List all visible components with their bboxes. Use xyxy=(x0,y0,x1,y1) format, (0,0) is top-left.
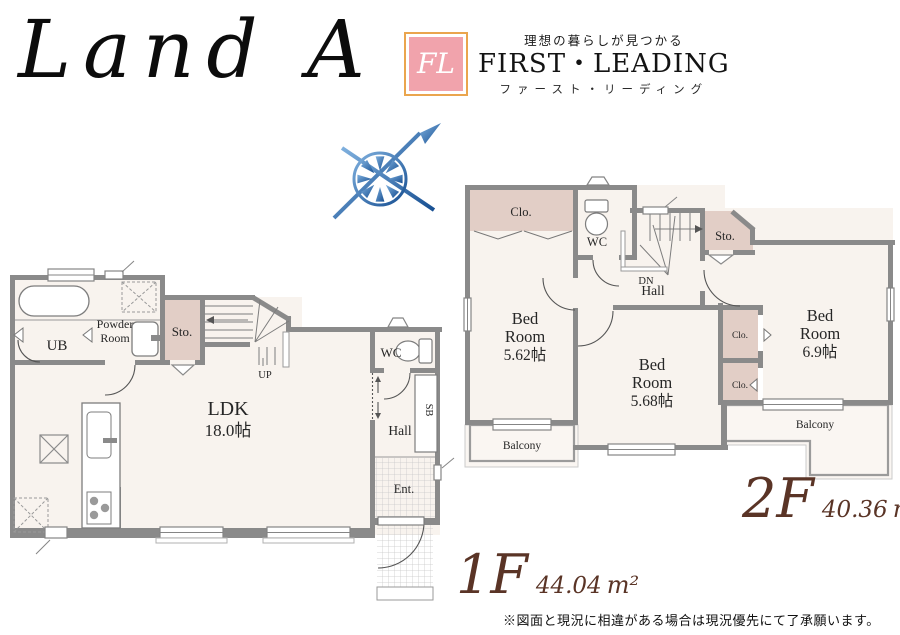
room-label-wc-1f: WC xyxy=(381,345,402,360)
company-logo: FL 理想の暮らしが見つかる FIRST・LEADING ファースト・リーディン… xyxy=(404,30,730,97)
room-label-ub: UB xyxy=(47,338,68,354)
compass-flag xyxy=(420,123,441,144)
room-label-wc-2f: WC xyxy=(587,235,607,249)
logo-monogram-box: FL xyxy=(404,32,468,96)
room-label-ldk: LDK xyxy=(207,398,249,420)
front-door-leaf xyxy=(378,517,424,525)
porch-step xyxy=(377,587,433,600)
room-label-clo-top: Clo. xyxy=(510,205,531,219)
room-label-ent: Ent. xyxy=(394,482,414,496)
logo-brand-name: FIRST・LEADING xyxy=(478,49,730,80)
bedroom3-label-1: Bed xyxy=(807,306,834,325)
logo-tagline: 理想の暮らしが見つかる xyxy=(524,30,684,49)
bedroom1-label-2: Room xyxy=(505,327,546,346)
room-label-sto-2f: Sto. xyxy=(715,229,735,243)
room-label-clo-a: Clo. xyxy=(732,331,748,341)
floorplan-1f: UB Powder Room Sto. UP LDK 18.0帖 WC Hall… xyxy=(10,257,465,602)
floor1-name: 1F xyxy=(456,548,528,602)
logo-text-block: 理想の暮らしが見つかる FIRST・LEADING ファースト・リーディング xyxy=(478,30,730,97)
disclaimer-note: ※図面と現況に相違がある場合は現況優先にて了承願います。 xyxy=(503,610,880,629)
bedroom1-size: 5.62帖 xyxy=(504,346,547,364)
bedroom3-size: 6.9帖 xyxy=(803,343,838,361)
bedroom2-size: 5.68帖 xyxy=(631,392,674,410)
balcony-left-label: Balcony xyxy=(503,440,542,452)
compass-icon xyxy=(328,116,450,224)
floor2-area-value: 40.36 xyxy=(822,497,888,523)
floorplan-2f: Clo. WC DN Sto. Hall Bed Room 5.62帖 Bed … xyxy=(463,174,895,510)
stairs-up-label: UP xyxy=(258,370,272,381)
logo-monogram: FL xyxy=(409,37,463,91)
room-label-powder-1: Powder xyxy=(97,317,134,331)
bedroom3-label-2: Room xyxy=(800,324,841,343)
page-title: Land A xyxy=(18,4,377,96)
vanity-sink-icon xyxy=(132,322,160,356)
floor1-area-value: 44.04 xyxy=(536,573,602,599)
floor2-name: 2F xyxy=(742,472,814,526)
room-label-clo-b: Clo. xyxy=(732,381,748,391)
bedroom2-label-2: Room xyxy=(632,373,673,392)
floor1-area-label: 1F 44.04 m² xyxy=(456,548,639,602)
balcony-right-label: Balcony xyxy=(796,419,835,431)
floor1-area-unit: m² xyxy=(607,571,639,599)
porch-tile xyxy=(377,523,433,587)
compass-star xyxy=(357,156,402,201)
toilet-icon-2f xyxy=(585,200,608,235)
compass-cross-lines xyxy=(334,133,434,218)
room-label-ldk-size: 18.0帖 xyxy=(205,421,252,440)
room-label-powder-2: Room xyxy=(100,331,130,345)
room-label-sb: SB xyxy=(423,404,434,417)
room-label-sto-1f: Sto. xyxy=(172,324,193,339)
room-label-hall-2f: Hall xyxy=(641,283,664,298)
flyer-canvas: Land A FL 理想の暮らしが見つかる FIRST・LEADING ファース… xyxy=(0,0,900,635)
floor2-area-label: 2F 40.36 m² xyxy=(742,472,900,526)
bedroom1-label-1: Bed xyxy=(512,309,539,328)
room-label-hall-1f: Hall xyxy=(388,423,411,438)
logo-brand-kana: ファースト・リーディング xyxy=(500,81,709,97)
bedroom2-label-1: Bed xyxy=(639,355,666,374)
kitchen-icon xyxy=(82,403,120,528)
floor2-area-unit: m² xyxy=(893,495,900,523)
